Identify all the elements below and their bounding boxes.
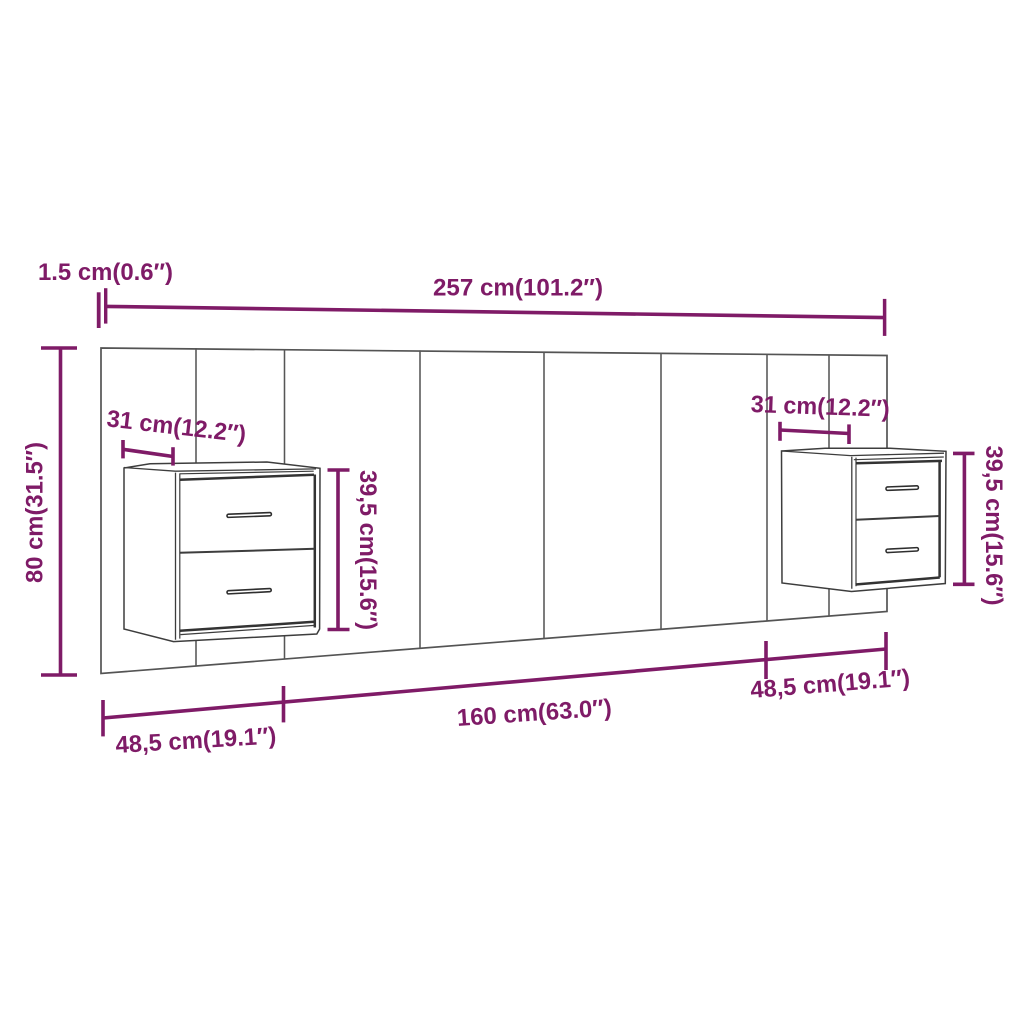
svg-text:257 cm(101.2″): 257 cm(101.2″) [433,275,603,302]
svg-text:39,5 cm(15.6″): 39,5 cm(15.6″) [980,446,1007,606]
svg-text:1.5 cm(0.6″): 1.5 cm(0.6″) [38,259,173,286]
svg-text:39,5 cm(15.6″): 39,5 cm(15.6″) [354,470,381,630]
svg-text:80 cm(31.5″): 80 cm(31.5″) [22,442,49,583]
svg-text:31 cm(12.2″): 31 cm(12.2″) [750,391,890,423]
